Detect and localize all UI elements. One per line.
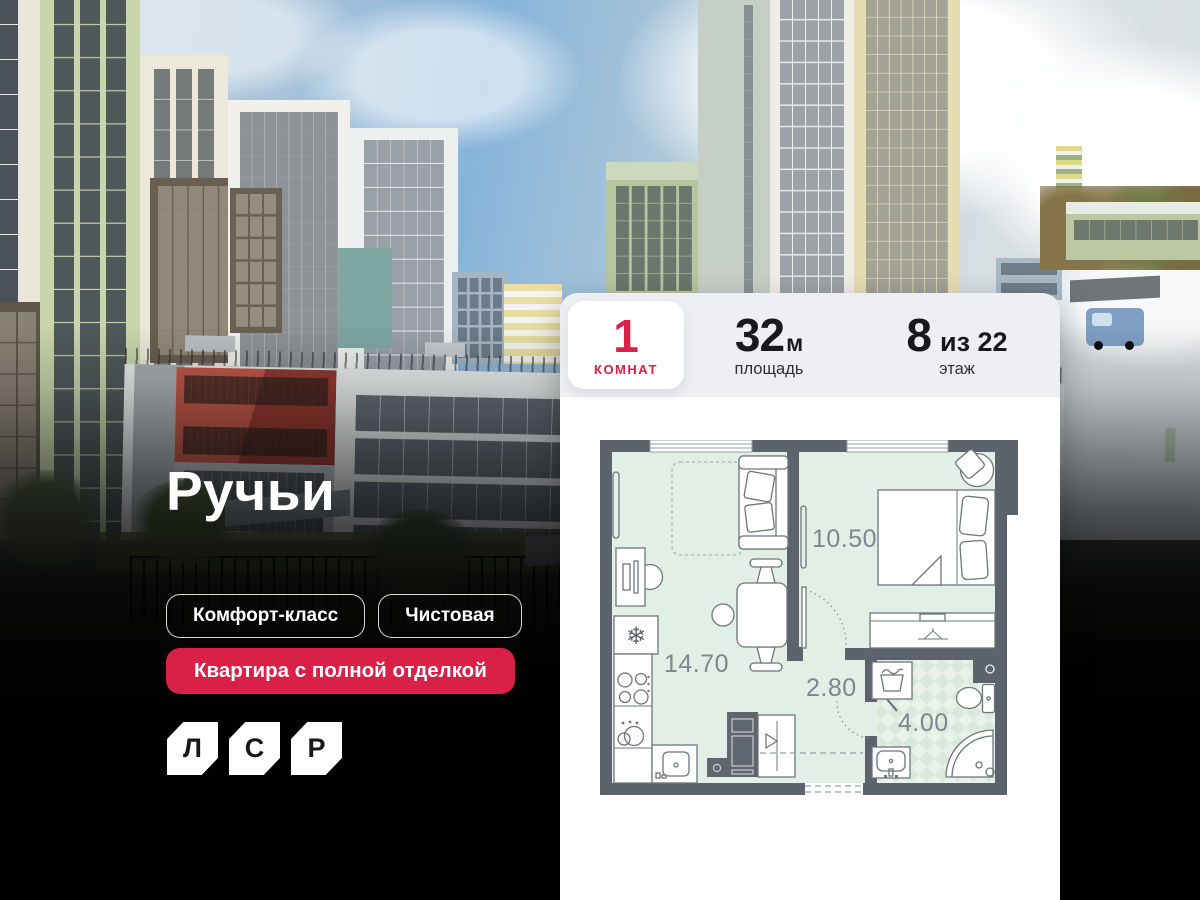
- bathroom-sink: [872, 747, 910, 778]
- bg-pergola: [1070, 276, 1160, 303]
- logo-tile-l: Л: [167, 722, 218, 775]
- entry-panel: [758, 715, 795, 777]
- fridge-icon: ❄: [614, 616, 658, 654]
- floorplan: ❄: [600, 440, 1018, 795]
- promo-banner: Ручьи Комфорт-класс Чистовая Квартира с …: [0, 0, 1200, 900]
- logo-tile-s: С: [229, 722, 280, 775]
- area-label: площадь: [735, 360, 804, 379]
- bg-building: [1066, 202, 1200, 260]
- tag-full-finish: Квартира с полной отделкой: [166, 648, 515, 694]
- rooms-label: комнат: [594, 362, 658, 377]
- bg-building: [606, 162, 702, 297]
- tag-comfort-class: Комфорт-класс: [166, 594, 365, 638]
- sofa: [739, 456, 788, 549]
- bg-building: [854, 0, 960, 305]
- svg-text:❄: ❄: [626, 622, 646, 650]
- rooms-count: 1: [613, 313, 639, 359]
- bg-building: [698, 0, 770, 305]
- lsr-logo: Л С Р: [167, 722, 342, 775]
- washing-machine: [872, 662, 912, 699]
- tag-finishing: Чистовая: [378, 594, 521, 638]
- area-unit: м: [786, 330, 803, 357]
- room-area-label: 14.70: [664, 650, 729, 678]
- room-area-label: 2.80: [806, 674, 857, 702]
- rooms-badge: 1 комнат: [568, 301, 684, 389]
- flat-card[interactable]: 1 комнат 32 м площадь 8 из 22 этаж: [560, 293, 1060, 900]
- vent-shaft: [973, 655, 1007, 683]
- tag-row: Комфорт-класс Чистовая: [166, 594, 522, 638]
- flat-card-header: 1 комнат 32 м площадь 8 из 22 этаж: [560, 293, 1060, 397]
- hero-content: Ручьи Комфорт-класс Чистовая Квартира с …: [0, 0, 560, 900]
- wardrobe: [870, 613, 995, 648]
- room-area-label: 10.50: [812, 525, 877, 553]
- project-title: Ручьи: [166, 459, 335, 523]
- bg-building: [770, 0, 854, 305]
- floor-of-total: из 22: [940, 327, 1008, 358]
- room-area-label: 4.00: [898, 709, 949, 737]
- floor-value: 8: [906, 312, 931, 358]
- area-value: 32: [735, 312, 784, 358]
- logo-tile-r: Р: [291, 722, 342, 775]
- floor-stat: 8 из 22 этаж: [854, 312, 1060, 379]
- window: [847, 440, 948, 452]
- area-stat: 32 м площадь: [684, 312, 854, 379]
- window: [650, 440, 752, 452]
- floor-label: этаж: [939, 360, 975, 379]
- bg-toy-truck: [1086, 308, 1144, 346]
- double-bed: [878, 490, 995, 585]
- kitchen-sink: [652, 745, 697, 783]
